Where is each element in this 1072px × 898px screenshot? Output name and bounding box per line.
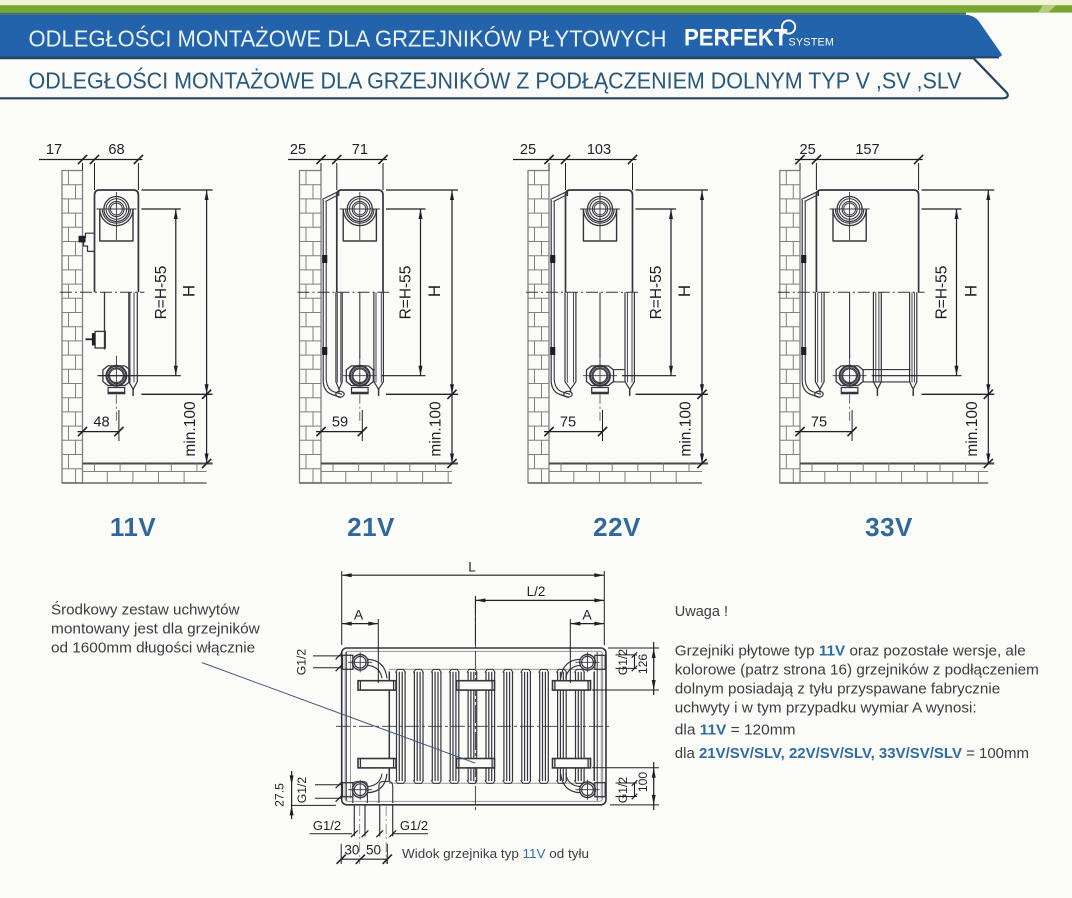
svg-text:G1/2: G1/2	[313, 818, 341, 833]
svg-text:min.100: min.100	[678, 401, 695, 457]
svg-text:27.5: 27.5	[273, 783, 287, 807]
svg-text:kolorowe (patrz strona 16) grz: kolorowe (patrz strona 16) grzejników z …	[675, 663, 1039, 679]
svg-text:100: 100	[636, 772, 650, 793]
svg-text:min.100: min.100	[182, 401, 199, 457]
svg-text:75: 75	[560, 415, 576, 431]
svg-text:126: 126	[636, 654, 650, 675]
svg-text:22V: 22V	[593, 512, 641, 542]
svg-text:A: A	[354, 607, 364, 623]
svg-text:33V: 33V	[865, 512, 913, 542]
svg-text:Grzejniki płytowe typ 11V oraz: Grzejniki płytowe typ 11V oraz pozostałe…	[675, 644, 1026, 660]
svg-text:R=H-55: R=H-55	[398, 266, 415, 320]
svg-text:R=H-55: R=H-55	[648, 266, 665, 320]
svg-text:R=H-55: R=H-55	[153, 266, 170, 320]
svg-text:ODLEGŁOŚCI MONTAŻOWE DLA GR: ODLEGŁOŚCI MONTAŻOWE DLA GRZEJNIKÓW PŁYT…	[29, 25, 667, 51]
svg-text:min.100: min.100	[428, 401, 445, 457]
svg-text:PERFEKT: PERFEKT	[684, 25, 788, 52]
svg-text:montowany jest dla grzejników: montowany jest dla grzejników	[51, 622, 260, 638]
svg-text:59: 59	[332, 415, 348, 431]
svg-text:21V: 21V	[347, 512, 395, 542]
svg-text:25: 25	[799, 142, 815, 158]
svg-text:25: 25	[290, 142, 306, 158]
svg-text:11V: 11V	[110, 512, 156, 542]
svg-text:G1/2: G1/2	[400, 818, 428, 833]
svg-text:103: 103	[587, 142, 611, 158]
svg-text:25: 25	[520, 142, 536, 158]
svg-text:30: 30	[344, 843, 359, 858]
svg-text:68: 68	[108, 142, 124, 158]
svg-text:A: A	[582, 607, 592, 623]
svg-text:Widok grzejnika typ 11V od tył: Widok grzejnika typ 11V od tyłu	[402, 846, 589, 861]
svg-text:G1/2: G1/2	[616, 649, 630, 676]
svg-text:157: 157	[855, 142, 879, 158]
svg-text:min.100: min.100	[964, 401, 981, 457]
svg-text:R=H-55: R=H-55	[934, 266, 951, 320]
svg-text:Środkowy zestaw uchwytów: Środkowy zestaw uchwytów	[51, 601, 240, 619]
svg-text:SYSTEM: SYSTEM	[789, 37, 835, 49]
svg-text:H: H	[961, 285, 980, 297]
svg-text:uchwyty i w tym przypadku wymi: uchwyty i w tym przypadku wymiar A wynos…	[675, 701, 977, 717]
svg-text:od 1600mm długości włącznie: od 1600mm długości włącznie	[51, 640, 255, 656]
svg-text:71: 71	[352, 142, 368, 158]
svg-text:G1/2: G1/2	[295, 649, 309, 676]
svg-text:ODLEGŁOŚCI MONTAŻOWE DLA GRZEJ: ODLEGŁOŚCI MONTAŻOWE DLA GRZEJNIKÓW Z PO…	[29, 67, 963, 93]
svg-text:50: 50	[366, 843, 381, 858]
svg-text:75: 75	[811, 415, 827, 431]
svg-text:48: 48	[93, 415, 109, 431]
svg-text:G1/2: G1/2	[616, 777, 630, 804]
svg-text:dolnym posiadają z tyłu przysp: dolnym posiadają z tyłu przyspawane fabr…	[675, 682, 1000, 698]
svg-text:H: H	[425, 285, 444, 297]
svg-text:dla 21V/SV/SLV, 22V/SV/SLV, 33: dla 21V/SV/SLV, 22V/SV/SLV, 33V/SV/SLV =…	[675, 746, 1029, 762]
svg-text:G1/2: G1/2	[295, 777, 309, 804]
svg-text:H: H	[675, 285, 694, 297]
svg-text:Uwaga !: Uwaga !	[675, 604, 728, 620]
svg-text:17: 17	[46, 142, 62, 158]
svg-text:L/2: L/2	[527, 584, 546, 599]
svg-text:L: L	[468, 560, 476, 575]
svg-text:dla 11V = 120mm: dla 11V = 120mm	[675, 722, 796, 738]
svg-text:H: H	[180, 285, 199, 297]
